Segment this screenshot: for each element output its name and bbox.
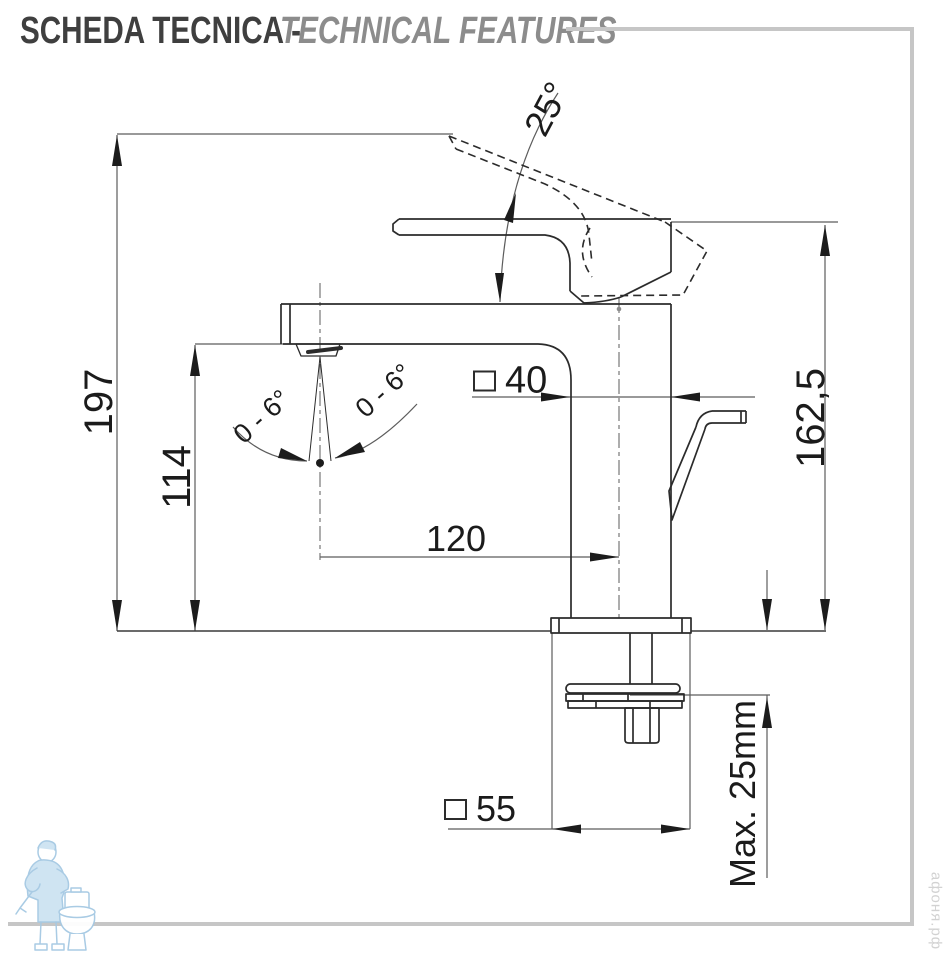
dim-base-section-square: 55 [444, 788, 516, 830]
technical-sheet-page: SCHEDA TECNICA - TECHNICAL FEATURES [0, 0, 950, 954]
centerlines [320, 283, 619, 629]
swivel-vertex-dot [316, 459, 324, 467]
spray-cone-left [309, 357, 320, 461]
horseshoe-washer [566, 684, 680, 693]
drain-pull-rod [669, 427, 705, 520]
base-flange [551, 618, 691, 633]
spray-cone-right [320, 357, 331, 461]
faucet-body-outline [281, 219, 746, 743]
square-section-icon [444, 799, 467, 820]
dim-height-to-lever-top: 162,5 [791, 368, 831, 468]
handle-body-front [621, 272, 671, 297]
plumber-with-toilet-watermark-icon [8, 828, 148, 954]
dim-overall-height: 197 [79, 369, 119, 436]
mounting-nut [625, 708, 659, 743]
aerator-screen [308, 348, 341, 352]
square-section-icon [473, 371, 496, 392]
handle-raised-position-dashed [449, 136, 707, 296]
dim-body-section-square: 40 [473, 360, 547, 403]
site-watermark: афоня.рф [928, 872, 945, 950]
lever-bottom-edge [399, 235, 570, 291]
dim-max-deck-thickness: Max. 25mm [725, 700, 761, 888]
dim-spout-outlet-height: 114 [157, 445, 197, 509]
washer-plate-2 [568, 701, 682, 708]
dim-spout-reach: 120 [426, 521, 486, 557]
pivot-mark [617, 307, 622, 312]
